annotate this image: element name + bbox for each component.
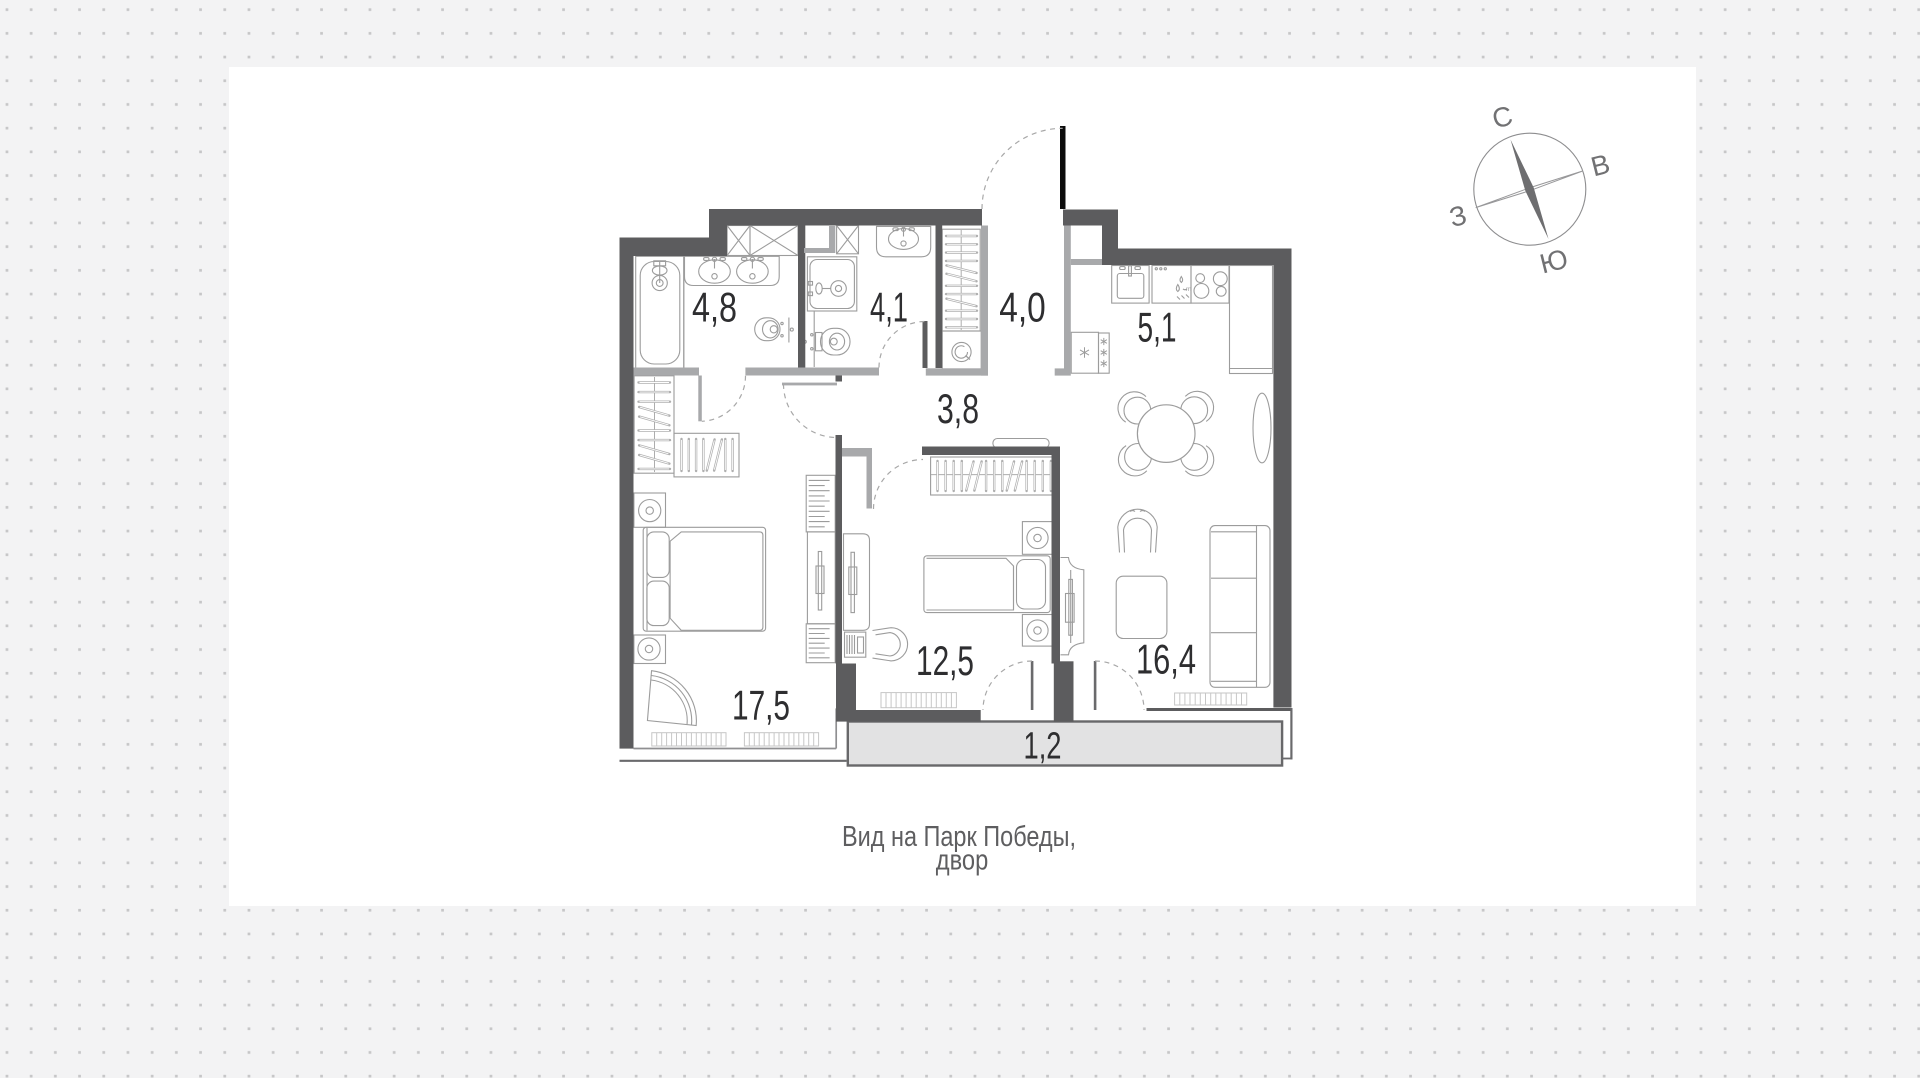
svg-text:4,8: 4,8 <box>692 284 737 331</box>
svg-text:4,0: 4,0 <box>999 284 1046 331</box>
svg-text:17,5: 17,5 <box>732 682 790 729</box>
svg-text:3,8: 3,8 <box>937 385 979 432</box>
svg-text:1,2: 1,2 <box>1024 726 1062 768</box>
svg-text:двор: двор <box>936 845 989 877</box>
svg-text:5,1: 5,1 <box>1138 304 1177 351</box>
svg-text:12,5: 12,5 <box>916 637 974 684</box>
svg-text:16,4: 16,4 <box>1136 636 1196 683</box>
svg-text:4,1: 4,1 <box>870 284 908 331</box>
